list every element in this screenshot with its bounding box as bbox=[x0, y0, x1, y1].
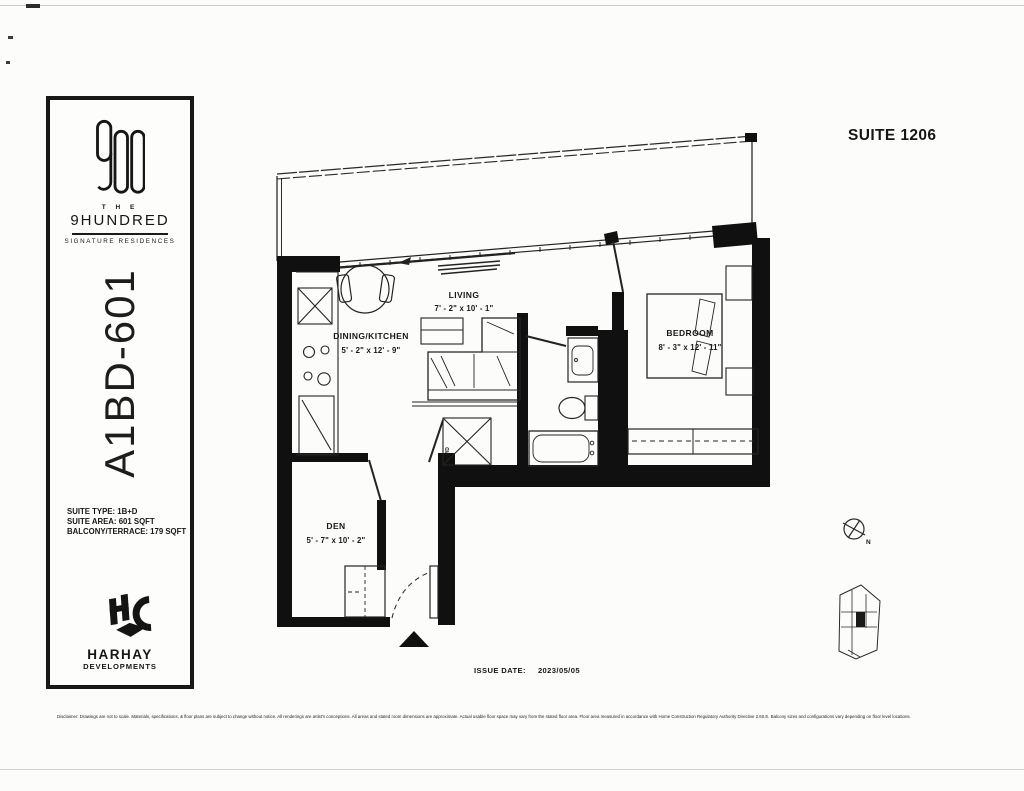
bedroom-label: BEDROOM bbox=[666, 328, 713, 338]
hc-logo-icon bbox=[100, 585, 157, 643]
brand-name: 9HUNDRED bbox=[50, 212, 190, 229]
suite-area-line: SUITE AREA: 601 SQFT bbox=[67, 517, 186, 527]
suite-type-line: SUITE TYPE: 1B+D bbox=[67, 507, 186, 517]
balcony-access-arrow bbox=[398, 257, 411, 265]
scan-artifact bbox=[26, 4, 40, 8]
900-logo-icon bbox=[95, 113, 145, 203]
window-wall bbox=[340, 231, 714, 268]
suite-balcony-line: BALCONY/TERRACE: 179 SQFT bbox=[67, 527, 186, 537]
balcony-railing bbox=[277, 133, 757, 261]
issue-date-label: ISSUE DATE: bbox=[474, 666, 526, 675]
living-lower-wall bbox=[412, 402, 518, 406]
scan-artifact bbox=[0, 5, 1024, 6]
harhay-hc-logo bbox=[100, 585, 157, 648]
kitchen-counter bbox=[296, 272, 338, 455]
entry-marker-triangle bbox=[399, 631, 429, 647]
disclaimer-text: Disclaimer: Drawings are not to scale. M… bbox=[57, 714, 987, 719]
bathtub bbox=[529, 431, 598, 466]
room-labels: LIVING 7' - 2" x 10' - 1" DINING/KITCHEN… bbox=[307, 290, 722, 545]
issue-date-line: ISSUE DATE:2023/05/05 bbox=[474, 666, 580, 675]
brand-tagline: SIGNATURE RESIDENCES bbox=[50, 238, 190, 245]
scan-artifact bbox=[8, 36, 13, 39]
den-dims: 5' - 7" x 10' - 2" bbox=[307, 536, 366, 545]
key-plan-suite-marker bbox=[856, 612, 865, 627]
scan-artifact bbox=[6, 61, 10, 64]
compass-icon bbox=[843, 519, 865, 539]
floorplan-drawing: W/D bbox=[255, 118, 1000, 668]
den-door-leaf bbox=[369, 460, 381, 501]
bathroom-fixtures bbox=[526, 336, 598, 466]
bedroom-dims: 8' - 3" x 12' - 11" bbox=[658, 343, 721, 352]
dining-kitchen-dims: 5' - 2" x 12' - 9" bbox=[342, 346, 401, 355]
living-dims: 7' - 2" x 10' - 1" bbox=[435, 304, 494, 313]
nightstand bbox=[726, 368, 753, 395]
suite-model-code: A1BD-601 bbox=[89, 266, 151, 480]
toilet bbox=[559, 398, 585, 419]
key-plan bbox=[839, 585, 880, 659]
den-closet bbox=[345, 566, 385, 617]
scan-artifact bbox=[0, 769, 1024, 770]
coffee-table bbox=[421, 318, 463, 344]
wd-label: W/D bbox=[445, 447, 451, 457]
sidebar-panel: T H E 9HUNDRED SIGNATURE RESIDENCES A1BD… bbox=[46, 96, 194, 689]
ceiling-bulkhead bbox=[438, 261, 500, 274]
north-label: N bbox=[866, 539, 871, 546]
bedroom-door-leaf bbox=[613, 241, 623, 292]
bedroom-closet bbox=[628, 429, 758, 454]
issue-date-value: 2023/05/05 bbox=[538, 666, 580, 675]
scanned-floorplan-page: T H E 9HUNDRED SIGNATURE RESIDENCES A1BD… bbox=[0, 0, 1024, 791]
den-label: DEN bbox=[326, 521, 345, 531]
developer-subtitle: DEVELOPMENTS bbox=[50, 662, 190, 671]
dining-kitchen-label: DINING/KITCHEN bbox=[333, 331, 409, 341]
living-label: LIVING bbox=[449, 290, 480, 300]
entry-door-swing bbox=[392, 572, 430, 618]
suite-details: SUITE TYPE: 1B+D SUITE AREA: 601 SQFT BA… bbox=[67, 507, 186, 537]
entry-door-leaf bbox=[430, 566, 438, 618]
stove-burners bbox=[304, 346, 331, 385]
brand-divider bbox=[72, 233, 168, 235]
brand-the: T H E bbox=[50, 204, 190, 211]
entry-door bbox=[392, 566, 438, 618]
bathroom-door-leaf bbox=[526, 336, 566, 346]
nightstand bbox=[726, 266, 752, 300]
developer-name: HARHAY bbox=[50, 647, 190, 662]
the-9hundred-logo bbox=[95, 113, 145, 208]
dining-table bbox=[336, 265, 395, 313]
